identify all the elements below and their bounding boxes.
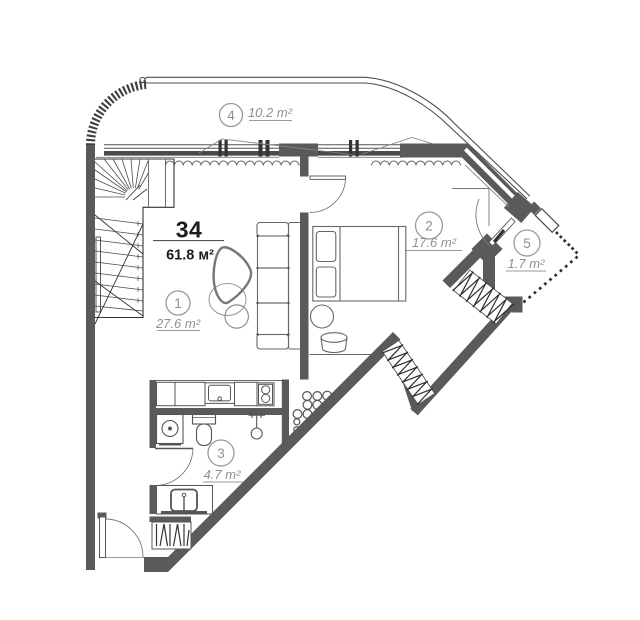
svg-text:27.6 m²: 27.6 m² (155, 316, 201, 331)
svg-text:1: 1 (174, 296, 182, 311)
svg-text:34: 34 (176, 216, 203, 242)
svg-text:2: 2 (425, 219, 433, 234)
svg-text:5: 5 (523, 236, 531, 251)
svg-text:3: 3 (217, 446, 225, 461)
svg-text:10.2 m²: 10.2 m² (248, 105, 293, 120)
svg-text:4: 4 (227, 108, 235, 123)
svg-text:1.7 m²: 1.7 m² (508, 256, 546, 271)
svg-text:4.7 m²: 4.7 m² (204, 467, 242, 482)
svg-text:61.8 м²: 61.8 м² (166, 247, 214, 263)
svg-text:17.6 m²: 17.6 m² (412, 235, 457, 250)
